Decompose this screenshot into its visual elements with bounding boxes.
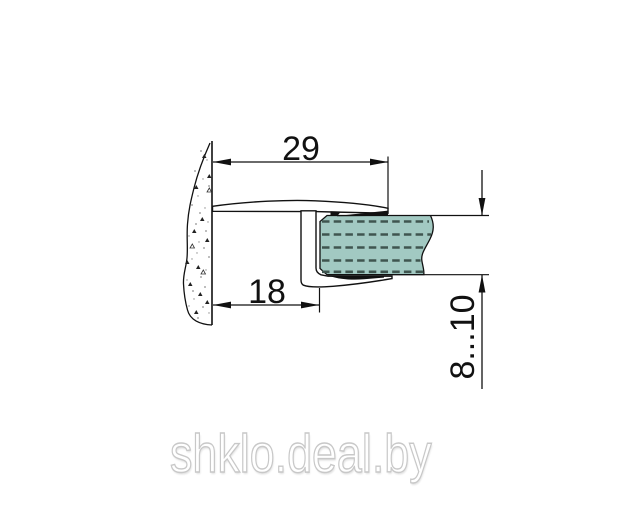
technical-drawing: 29 18 8...10 shklo.deal.by (0, 0, 640, 515)
glass-panel (320, 216, 433, 275)
dim-glass-thickness-value: 8...10 (445, 287, 481, 387)
dim-29-arrow-right (370, 159, 388, 166)
dim-18-arrow-left (213, 302, 231, 309)
wall-section (183, 141, 212, 325)
dim-29-arrow-left (213, 159, 231, 166)
dim-thickness-arrow-down (479, 198, 486, 216)
seal-profile (213, 200, 434, 287)
dim-18-value: 18 (237, 275, 297, 309)
dim-29-value: 29 (271, 132, 331, 166)
dim-18-arrow-right (301, 302, 319, 309)
watermark-text: shklo.deal.by (170, 427, 432, 481)
profile-top-flange (213, 200, 389, 213)
